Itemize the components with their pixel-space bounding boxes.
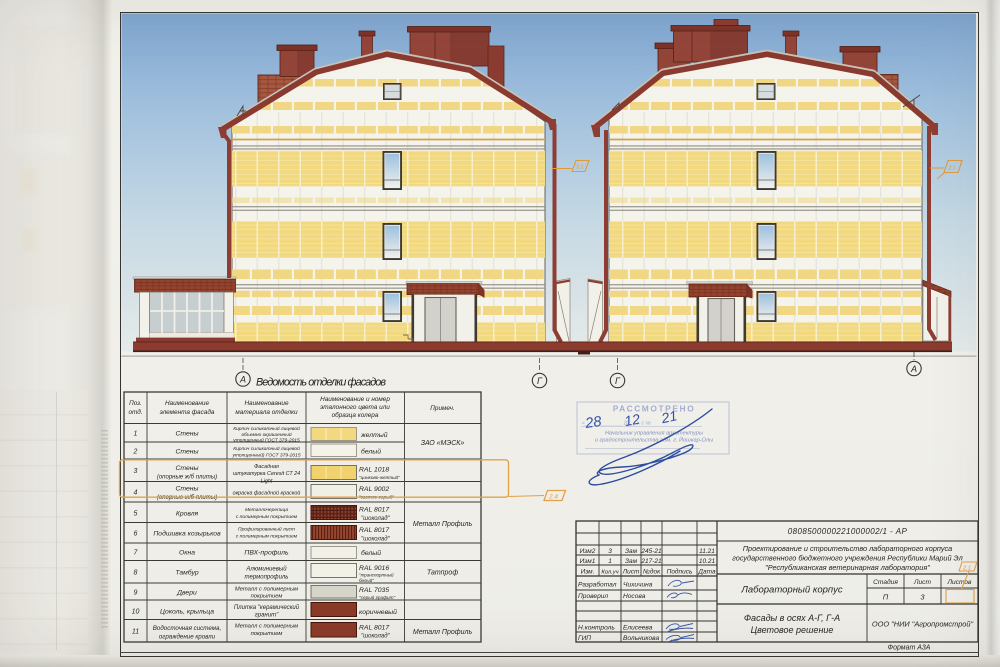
svg-text:Лист: Лист	[622, 569, 640, 576]
svg-text:0808500000221000002/1 - АР: 0808500000221000002/1 - АР	[788, 527, 908, 536]
svg-text:Наименование: Наименование	[165, 400, 210, 407]
svg-text:"Республиканская ветеринарная: "Республиканская ветеринарная лаборатори…	[765, 563, 930, 572]
svg-text:RAL 8017: RAL 8017	[359, 527, 389, 534]
svg-text:RAL 1018: RAL 1018	[359, 467, 389, 474]
svg-text:Изм2: Изм2	[580, 548, 596, 555]
svg-text:ПВХ-профиль: ПВХ-профиль	[244, 550, 289, 557]
svg-text:утолщенный) ГОСТ 379-2015: утолщенный) ГОСТ 379-2015	[231, 452, 300, 459]
svg-text:Металл Профиль: Металл Профиль	[413, 629, 473, 636]
svg-text:Листов: Листов	[946, 579, 972, 586]
svg-text:Алюминиевый: Алюминиевый	[245, 566, 287, 573]
svg-text:утолщенный ГОСТ 379-2015: утолщенный ГОСТ 379-2015	[232, 437, 300, 444]
svg-text:Фасадная: Фасадная	[254, 464, 279, 470]
svg-text:Металл с полимерным: Металл с полимерным	[235, 587, 298, 593]
svg-text:Поз.: Поз.	[129, 400, 142, 407]
svg-text:материала отделки: материала отделки	[235, 408, 298, 416]
svg-text:245-21: 245-21	[640, 548, 662, 555]
svg-text:"транспортный: "транспортный	[359, 572, 394, 578]
svg-text:2.1: 2.1	[962, 566, 971, 572]
svg-text:11: 11	[132, 629, 139, 636]
svg-text:Кол.уч: Кол.уч	[601, 570, 618, 576]
svg-text:Чихичина: Чихичина	[623, 582, 653, 589]
svg-text:RAL 9016: RAL 9016	[359, 565, 389, 572]
svg-text:1: 1	[608, 558, 612, 565]
svg-text:3: 3	[134, 468, 138, 475]
svg-text:Кирпич силикатный лицевой: Кирпич силикатный лицевой	[233, 425, 300, 432]
svg-text:Носова: Носова	[623, 593, 646, 600]
svg-text:с полимерным покрытием: с полимерным покрытием	[236, 515, 298, 520]
svg-text:эталонного цвета или: эталонного цвета или	[320, 404, 390, 411]
svg-text:Дата: Дата	[697, 569, 716, 576]
svg-text:28: 28	[583, 414, 602, 432]
svg-text:ГИП: ГИП	[578, 635, 591, 642]
svg-text:Ведомость отделки фасадов: Ведомость отделки фасадов	[256, 377, 386, 389]
svg-text:RAL 7035: RAL 7035	[359, 587, 389, 594]
svg-text:(опорные ж/б плиты): (опорные ж/б плиты)	[157, 475, 217, 481]
svg-text:покрытием: покрытием	[251, 594, 283, 600]
svg-text:Изм.: Изм.	[581, 569, 595, 576]
svg-text:Елисеева: Елисеева	[623, 625, 653, 632]
svg-text:10: 10	[132, 609, 140, 616]
svg-text:12: 12	[623, 411, 641, 429]
svg-text:гранит": гранит"	[255, 613, 279, 619]
svg-text:белый: белый	[361, 549, 381, 557]
svg-text:Стены: Стены	[175, 449, 198, 456]
svg-text:Цоколь, крыльца: Цоколь, крыльца	[160, 609, 214, 616]
svg-text:Формат А3А: Формат А3А	[888, 645, 931, 652]
svg-text:Подшивка козырьков: Подшивка козырьков	[153, 530, 221, 538]
svg-text:А: А	[239, 375, 246, 385]
svg-text:2.1: 2.1	[576, 165, 584, 171]
svg-text:Наименование: Наименование	[244, 400, 289, 407]
svg-text:Проектирование и строительство: Проектирование и строительство лаборатор…	[743, 544, 953, 553]
svg-text:RAL 8017: RAL 8017	[359, 625, 389, 632]
svg-text:Фасады в осях А-Г, Г-А: Фасады в осях А-Г, Г-А	[744, 613, 840, 623]
svg-text:Наименование и номер: Наименование и номер	[320, 396, 390, 403]
svg-text:11.21: 11.21	[699, 548, 715, 555]
svg-text:элемента фасада: элемента фасада	[160, 408, 215, 416]
svg-text:образца колера: образца колера	[332, 411, 379, 419]
svg-text:Зам: Зам	[625, 558, 638, 565]
svg-text:Light: Light	[261, 479, 273, 485]
svg-text:желтый: желтый	[360, 431, 388, 439]
svg-text:П: П	[883, 593, 889, 602]
svg-text:Стены: Стены	[175, 486, 198, 493]
svg-text:Вольникова: Вольникова	[623, 635, 659, 642]
svg-text:2.1: 2.1	[948, 166, 956, 172]
svg-text:"серый графит": "серый графит"	[359, 594, 396, 600]
svg-text:объемно окрашенный: объемно окрашенный	[241, 431, 291, 438]
svg-text:(опорные ж/б плиты): (опорные ж/б плиты)	[157, 495, 217, 501]
svg-text:окраска фасадной краской: окраска фасадной краской	[233, 490, 301, 497]
svg-text:Металл Профиль: Металл Профиль	[413, 521, 473, 528]
svg-text:Г: Г	[615, 376, 621, 386]
svg-text:№док: №док	[643, 568, 661, 576]
svg-text:Зам: Зам	[625, 548, 638, 555]
svg-text:Подпись: Подпись	[667, 568, 693, 576]
svg-text:Профилированный лист: Профилированный лист	[238, 526, 295, 533]
svg-text:и градостроительства адм. г. Й: и градостроительства адм. г. Йошкар-Олы	[595, 436, 713, 444]
svg-text:термопрофиль: термопрофиль	[245, 575, 289, 581]
svg-text:ограждение кровли: ограждение кровли	[159, 634, 216, 641]
svg-text:Разработал: Разработал	[578, 581, 617, 589]
svg-text:Стены: Стены	[175, 431, 198, 438]
svg-text:Металл с полимерным: Металл с полимерным	[235, 624, 298, 630]
svg-text:Стадия: Стадия	[873, 578, 898, 586]
svg-text:"шоколад": "шоколад"	[361, 516, 391, 522]
svg-text:21: 21	[659, 407, 679, 426]
svg-text:Кровля: Кровля	[176, 511, 199, 518]
svg-text:ЗАО «МЭСК»: ЗАО «МЭСК»	[421, 440, 465, 447]
svg-text:3: 3	[920, 593, 925, 602]
svg-text:7: 7	[134, 550, 139, 557]
svg-text:Начальник управления архитекту: Начальник управления архитектуры	[605, 431, 703, 437]
svg-text:Тамбур: Тамбур	[175, 569, 199, 577]
svg-text:Изм1: Изм1	[580, 558, 596, 565]
svg-text:с полимерным покрытием: с полимерным покрытием	[236, 535, 298, 540]
svg-text:"цинково-желтый": "цинково-желтый"	[359, 474, 400, 480]
svg-text:Примеч.: Примеч.	[430, 405, 454, 412]
svg-text:9: 9	[134, 590, 138, 597]
svg-text:ООО "НИИ "Агропромстрой": ООО "НИИ "Агропромстрой"	[872, 620, 974, 629]
svg-text:Водосточная система,: Водосточная система,	[153, 625, 221, 632]
svg-text:Металлочерепица: Металлочерепица	[245, 507, 288, 513]
svg-text:Проверил: Проверил	[578, 593, 608, 600]
svg-text:штукатурка Ceresit СТ 24: штукатурка Ceresit СТ 24	[233, 471, 300, 477]
svg-text:"шоколад": "шоколад"	[361, 537, 391, 543]
svg-text:1: 1	[134, 431, 138, 438]
svg-text:Двери: Двери	[176, 590, 197, 597]
svg-text:Окна: Окна	[179, 550, 195, 557]
svg-text:Лабораторный корпус: Лабораторный корпус	[740, 585, 843, 596]
svg-text:Лист: Лист	[913, 579, 931, 586]
svg-text:коричневый: коричневый	[359, 608, 397, 616]
svg-text:А: А	[910, 364, 917, 374]
svg-text:белый": белый"	[359, 577, 374, 583]
svg-text:государственного бюджетного уч: государственного бюджетного учреждения Р…	[732, 554, 963, 563]
svg-text:Н.контроль: Н.контроль	[578, 625, 615, 632]
svg-text:8: 8	[134, 570, 138, 577]
svg-text:"светло-серый": "светло-серый"	[359, 494, 394, 500]
svg-text:RAL 9002: RAL 9002	[359, 486, 389, 493]
svg-text:Плитка "керамический: Плитка "керамический	[234, 604, 300, 611]
svg-text:RAL 8017: RAL 8017	[359, 507, 389, 514]
svg-text:"шоколад": "шоколад"	[361, 634, 391, 640]
svg-text:отд.: отд.	[128, 408, 142, 416]
svg-text:6: 6	[134, 531, 138, 538]
svg-text:Стены: Стены	[175, 465, 198, 472]
svg-text:2: 2	[133, 449, 138, 456]
svg-text:Цветовое решение: Цветовое решение	[751, 625, 834, 635]
svg-text:3: 3	[608, 548, 612, 555]
svg-text:217-21: 217-21	[640, 558, 662, 565]
svg-text:белый: белый	[361, 448, 381, 456]
svg-text:5: 5	[134, 511, 138, 518]
svg-text:покрытием: покрытием	[251, 631, 283, 637]
svg-text:Татпроф: Татпроф	[427, 570, 458, 577]
svg-text:Кирпич силикатный лицевой: Кирпич силикатный лицевой	[233, 445, 300, 452]
svg-text:10.21: 10.21	[699, 558, 716, 565]
svg-text:Г: Г	[537, 376, 543, 386]
svg-text:4: 4	[134, 490, 138, 497]
